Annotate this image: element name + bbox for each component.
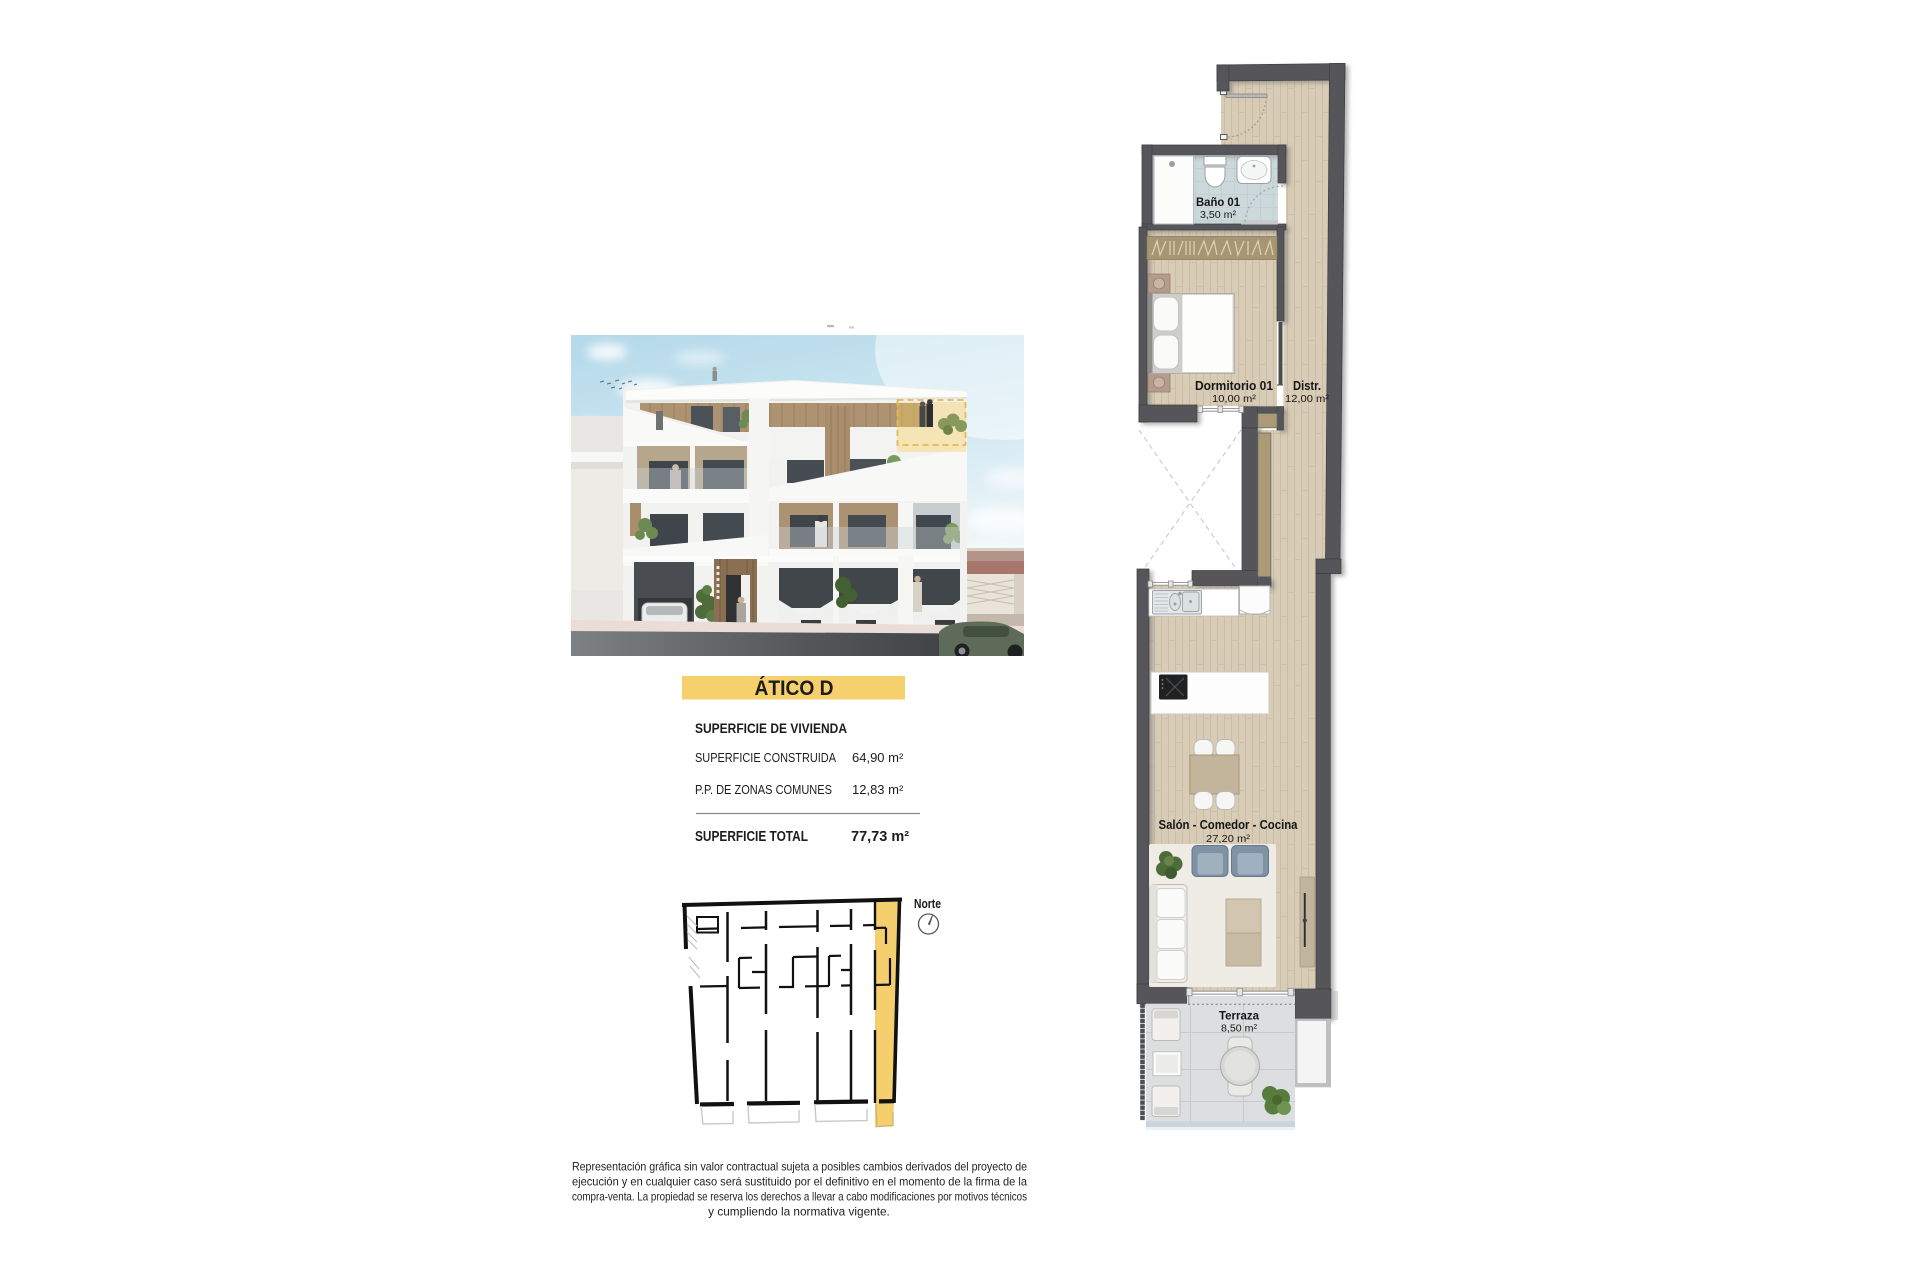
svg-text:12,83 m²: 12,83 m² [852, 782, 904, 797]
svg-text:Norte: Norte [914, 897, 941, 911]
svg-text:Distr.: Distr. [1293, 378, 1321, 393]
svg-text:8,50 m²: 8,50 m² [1221, 1024, 1258, 1035]
svg-text:27,20 m²: 27,20 m² [1206, 833, 1251, 845]
svg-text:64,90 m²: 64,90 m² [852, 750, 904, 765]
svg-text:P.P. DE ZONAS COMUNES: P.P. DE ZONAS COMUNES [695, 782, 832, 797]
svg-text:SUPERFICIE CONSTRUIDA: SUPERFICIE CONSTRUIDA [695, 750, 836, 765]
svg-text:10,00 m²: 10,00 m² [1212, 393, 1257, 405]
svg-text:SUPERFICIE TOTAL: SUPERFICIE TOTAL [695, 829, 808, 845]
svg-text:SUPERFICIE DE VIVIENDA: SUPERFICIE DE VIVIENDA [695, 721, 847, 736]
svg-text:77,73 m²: 77,73 m² [851, 829, 909, 845]
svg-text:3,50 m²: 3,50 m² [1200, 210, 1237, 221]
svg-text:Dormitorio 01: Dormitorio 01 [1195, 378, 1273, 393]
svg-text:ÁTICO D: ÁTICO D [755, 677, 834, 700]
svg-text:compra-venta. La propiedad se: compra-venta. La propiedad se reserva lo… [572, 1190, 1027, 1204]
svg-text:12,00 m²: 12,00 m² [1285, 393, 1330, 405]
svg-text:Baño 01: Baño 01 [1196, 195, 1240, 209]
svg-text:ejecución y en cualquier caso: ejecución y en cualquier caso será susti… [572, 1175, 1027, 1189]
svg-text:y cumpliendo la normativa vige: y cumpliendo la normativa vigente. [708, 1205, 890, 1219]
svg-text:Terraza: Terraza [1219, 1009, 1259, 1023]
svg-text:Salón - Comedor - Cocina: Salón - Comedor - Cocina [1159, 817, 1299, 832]
svg-text:Representación gráfica sin val: Representación gráfica sin valor contrac… [572, 1160, 1027, 1174]
